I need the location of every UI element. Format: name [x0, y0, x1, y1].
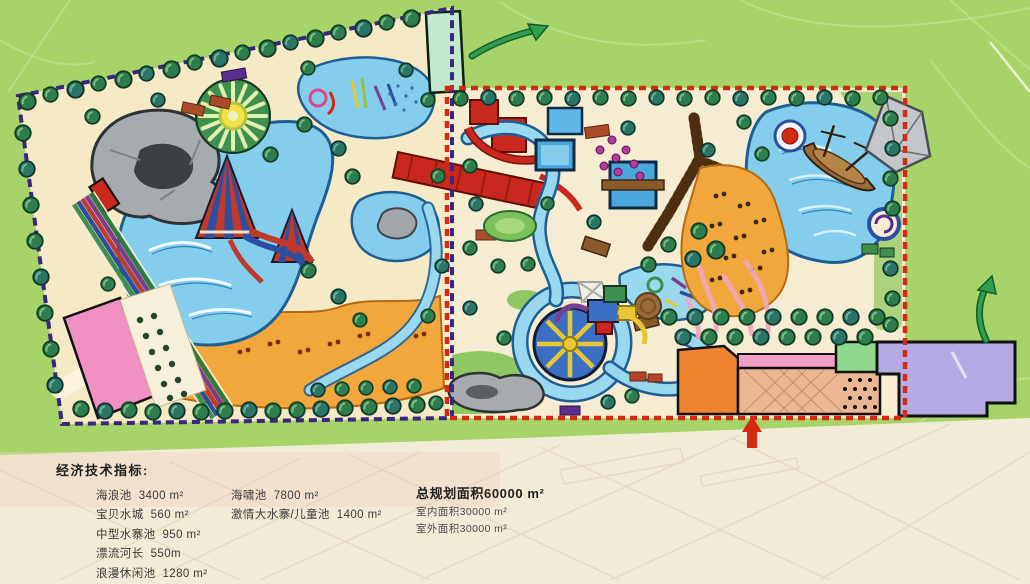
entrance-plaza [738, 368, 880, 414]
indicator-line: 海啸池7800 m² [231, 487, 382, 506]
indicator-line: 激情大水寨/儿童池1400 m² [231, 506, 382, 525]
outdoor-area-line: 室外面积30000 m² [416, 521, 544, 538]
gate-kiosk [560, 406, 580, 415]
pink-walkway [738, 354, 840, 368]
indoor-area-line: 室内面积30000 m² [416, 504, 544, 521]
indicator-line: 海浪池3400 m² [96, 487, 208, 506]
sun-carousel [196, 79, 270, 153]
lawn-oval [484, 211, 536, 241]
indicators-column-pools: 海浪池3400 m² 宝贝水城560 m² 中型水寨池950 m² 漂流河长55… [96, 487, 208, 584]
indicators-heading: 经济技术指标: [56, 460, 149, 479]
gate-kiosk [648, 374, 662, 382]
indicators-column-middle: 海啸池7800 m² 激情大水寨/儿童池1400 m² [231, 487, 382, 526]
indicator-line: 漂流河长550m [96, 545, 208, 564]
gate-kiosk [630, 372, 646, 381]
total-area-line: 总规划面积60000 m² [416, 483, 544, 504]
masterplan-canvas: 经济技术指标: 海浪池3400 m² 宝贝水城560 m² 中型水寨池950 m… [0, 0, 1030, 580]
ring-feature [775, 121, 805, 151]
orange-building [678, 346, 738, 414]
rock-formation [449, 373, 544, 412]
indicator-line: 宝贝水城560 m² [96, 506, 208, 525]
indicator-line: 浪漫休闲池1280 m² [96, 565, 208, 584]
indicators-column-totals: 总规划面积60000 m² 室内面积30000 m² 室外面积30000 m² [416, 483, 544, 538]
indicator-line: 中型水寨池950 m² [96, 526, 208, 545]
mint-building [426, 11, 464, 93]
dirt-circle [635, 293, 661, 319]
